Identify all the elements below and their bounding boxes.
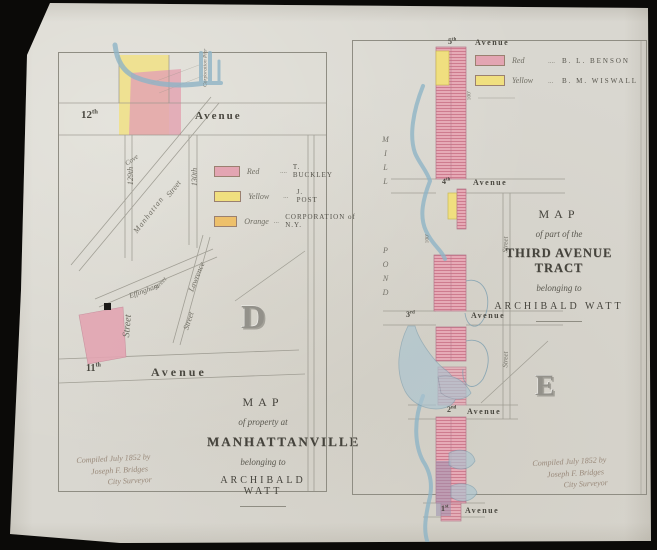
street-130-label: 130th bbox=[191, 152, 199, 202]
avenue-3-number: 3rd bbox=[406, 311, 415, 319]
legend-row-yellow-wiswall: Yellow ... B. M. WISWALL bbox=[475, 75, 638, 86]
mill-pond-label-mill: MILL bbox=[381, 135, 389, 191]
paper-sheet: 12th Avenue Corporation Pier 129th 130th… bbox=[0, 0, 657, 550]
legend-row-yellow: Yellow ... J. POST bbox=[214, 188, 326, 204]
avenue-2-number: 2nd bbox=[447, 406, 456, 414]
avenue-2-word: Avenue bbox=[467, 408, 501, 416]
manhattanville-map-frame: 12th Avenue Corporation Pier 129th 130th… bbox=[58, 52, 327, 492]
plate-letter-e: E bbox=[535, 371, 555, 401]
red-swatch bbox=[475, 55, 505, 66]
surveyor-note-right: Compiled July 1852 by Joseph F. Bridges … bbox=[532, 454, 608, 493]
map-photo: 12th Avenue Corporation Pier 129th 130th… bbox=[0, 0, 657, 550]
avenue-5-word: Avenue bbox=[475, 39, 509, 47]
avenue-12-number: 12th bbox=[81, 109, 98, 121]
dimension-100-upper: 100' bbox=[467, 83, 473, 109]
avenue-11-word: Avenue bbox=[151, 366, 207, 378]
avenue-4-number: 4th bbox=[442, 178, 450, 186]
avenue-11-number: 11th bbox=[86, 363, 101, 374]
title-rule bbox=[240, 506, 286, 507]
surveyor-note-left: Compiled July 1852 by Joseph F. Bridges … bbox=[76, 451, 152, 490]
third-avenue-tract-title: MAP of part of the THIRD AVENUE TRACT be… bbox=[486, 207, 632, 322]
orange-swatch bbox=[214, 216, 237, 227]
legend-row-orange: Orange ... CORPORATION of N.Y. bbox=[214, 213, 359, 229]
plate-letter-d: D bbox=[241, 301, 266, 335]
avenue-1-word: Avenue bbox=[465, 507, 499, 515]
avenue-12-word: Avenue bbox=[195, 111, 242, 122]
avenue-5-number: 5th bbox=[448, 38, 456, 46]
red-swatch bbox=[214, 166, 240, 177]
manhattanville-title: MAP of property at MANHATTANVILLE belong… bbox=[207, 395, 319, 507]
yellow-swatch bbox=[475, 75, 505, 86]
title-rule bbox=[536, 321, 582, 322]
legend-row-red: Red .... T. BUCKLEY bbox=[214, 163, 339, 179]
mill-pond-label-pond: POND bbox=[381, 246, 389, 302]
corporation-pier-label: Corporation Pier bbox=[203, 33, 209, 103]
avenue-1-number: 1st bbox=[441, 505, 448, 513]
avenue-4-word: Avenue bbox=[473, 179, 507, 187]
dimension-100-lower: 100' bbox=[425, 226, 431, 252]
legend-row-red-benson: Red .... B. L. BENSON bbox=[475, 55, 630, 66]
yellow-swatch bbox=[214, 191, 241, 202]
third-avenue-tract-map-frame: 5th Avenue 4th Avenue 3rd Avenue 2nd Ave… bbox=[352, 40, 647, 495]
